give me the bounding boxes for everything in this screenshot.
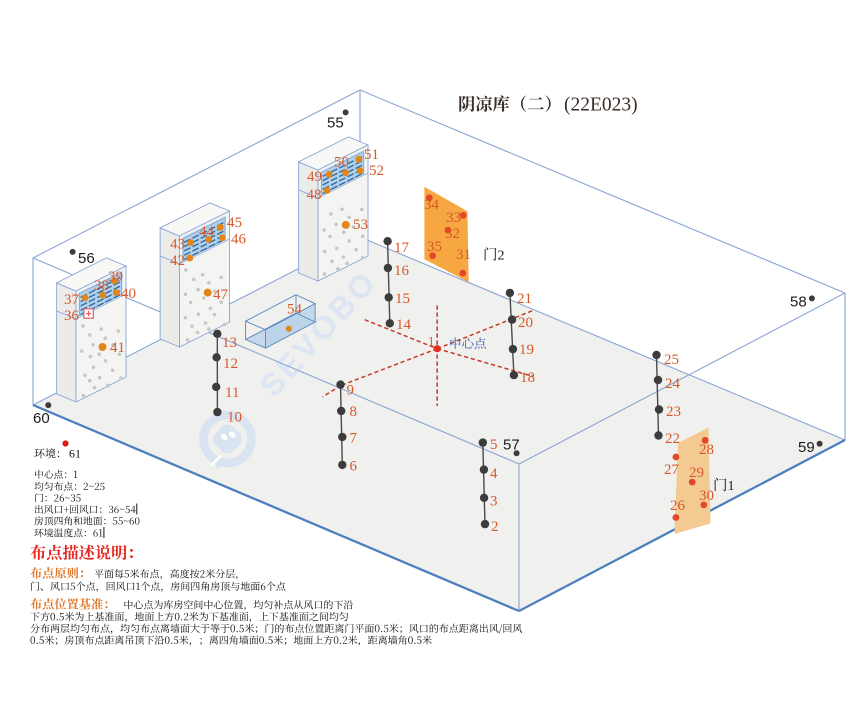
svg-text:20: 20 [518, 315, 533, 331]
svg-text:1: 1 [728, 479, 735, 494]
svg-text:21: 21 [517, 291, 532, 307]
svg-text:34: 34 [424, 197, 440, 213]
svg-text:54: 54 [287, 302, 303, 318]
svg-text:56: 56 [78, 250, 95, 267]
svg-text:13: 13 [222, 335, 237, 351]
svg-text:1: 1 [428, 334, 435, 349]
svg-text:11: 11 [225, 385, 239, 401]
svg-text:22: 22 [665, 431, 680, 447]
svg-text:32: 32 [445, 226, 460, 242]
svg-text:(22E023): (22E023) [564, 95, 638, 116]
svg-text:12: 12 [223, 356, 238, 372]
svg-text:10: 10 [227, 410, 242, 426]
svg-text:33: 33 [446, 210, 461, 226]
svg-text:18: 18 [520, 370, 535, 386]
svg-text:30: 30 [699, 488, 714, 504]
svg-text:39: 39 [108, 269, 123, 285]
svg-text:37: 37 [64, 292, 80, 308]
svg-text:28: 28 [699, 442, 714, 458]
svg-text:27: 27 [664, 462, 680, 478]
svg-text:19: 19 [519, 342, 534, 358]
svg-text:3: 3 [490, 494, 498, 510]
svg-text:16: 16 [394, 263, 410, 279]
svg-text:36: 36 [64, 308, 80, 324]
svg-text:60: 60 [33, 410, 50, 427]
svg-text:38: 38 [94, 278, 109, 294]
svg-text:31: 31 [456, 247, 471, 263]
svg-text:25: 25 [664, 352, 679, 368]
svg-text:26: 26 [670, 498, 686, 514]
svg-text:5: 5 [490, 437, 498, 453]
svg-text:50: 50 [334, 155, 349, 171]
svg-text:58: 58 [790, 294, 807, 311]
svg-text:23: 23 [666, 404, 681, 420]
svg-text:55: 55 [327, 115, 344, 132]
svg-text:46: 46 [231, 232, 247, 248]
svg-text:40: 40 [121, 286, 136, 302]
svg-text:52: 52 [369, 163, 384, 179]
svg-text:15: 15 [395, 291, 410, 307]
svg-text:24: 24 [665, 376, 681, 392]
svg-text:42: 42 [170, 253, 185, 269]
svg-text:14: 14 [396, 317, 412, 333]
svg-text:43: 43 [170, 237, 185, 253]
svg-text:6: 6 [350, 459, 358, 475]
svg-text:57: 57 [503, 437, 520, 454]
svg-text:45: 45 [227, 215, 242, 231]
svg-text:61: 61 [69, 447, 81, 461]
svg-text:44: 44 [199, 224, 215, 240]
svg-text:53: 53 [353, 217, 368, 233]
svg-text:7: 7 [350, 431, 358, 447]
svg-text:49: 49 [307, 169, 322, 185]
svg-text:9: 9 [347, 383, 355, 399]
svg-text:29: 29 [689, 465, 704, 481]
svg-text:2: 2 [491, 519, 499, 535]
svg-text:8: 8 [350, 404, 358, 420]
svg-text:41: 41 [110, 340, 125, 356]
svg-text:4: 4 [490, 466, 498, 482]
svg-text:47: 47 [213, 287, 229, 303]
svg-text:48: 48 [307, 187, 322, 203]
svg-text:2: 2 [498, 249, 505, 264]
svg-text:51: 51 [364, 147, 379, 163]
svg-text:59: 59 [798, 439, 815, 456]
svg-text:17: 17 [394, 240, 410, 256]
svg-text:35: 35 [427, 239, 442, 255]
